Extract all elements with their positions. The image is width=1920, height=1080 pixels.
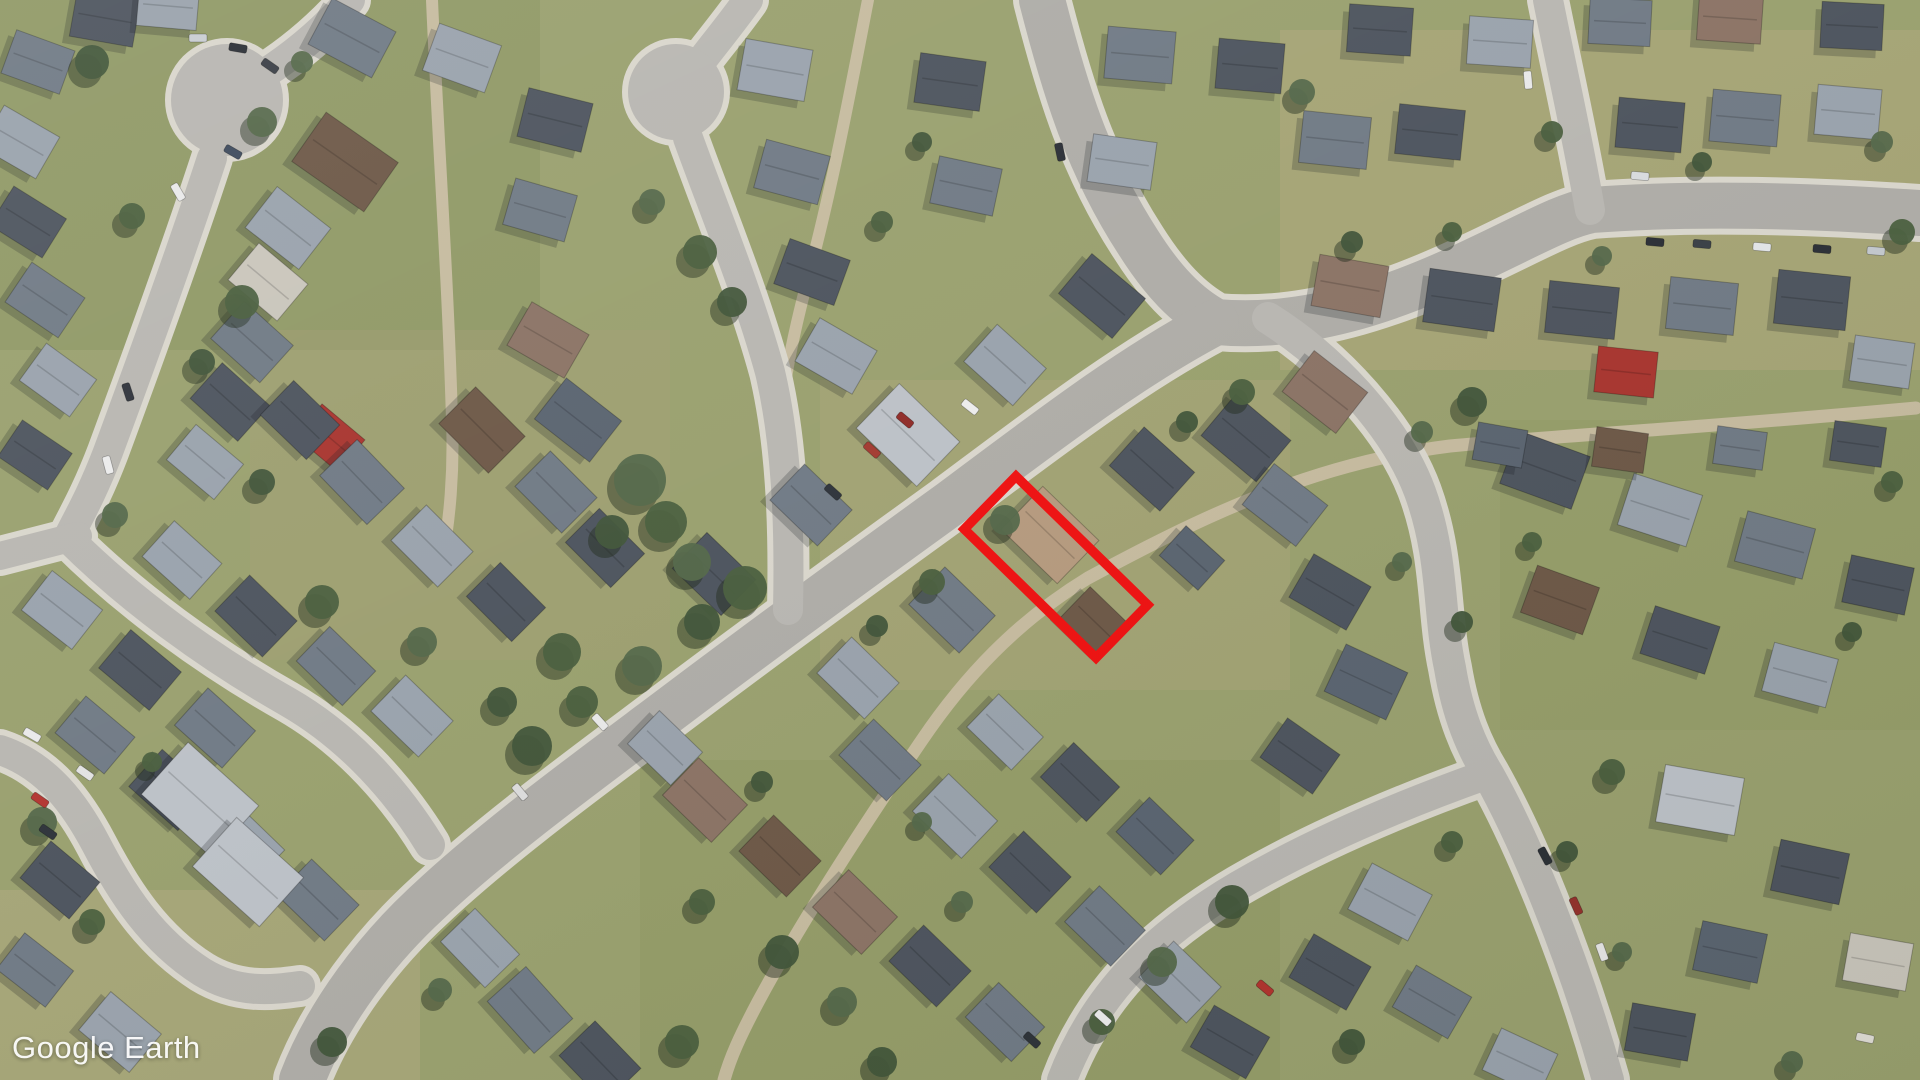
tree	[1556, 841, 1578, 863]
tree	[543, 633, 581, 671]
house	[1473, 1026, 1557, 1080]
street-pavement	[0, 536, 78, 556]
house	[1842, 334, 1915, 397]
tree	[189, 349, 215, 375]
tree	[1592, 246, 1612, 266]
tree	[919, 569, 945, 595]
car	[1867, 246, 1886, 256]
tree	[249, 469, 275, 495]
tree	[595, 515, 629, 549]
tree	[1541, 121, 1563, 143]
car	[1855, 1032, 1874, 1044]
car	[1523, 71, 1533, 90]
car-body	[189, 34, 207, 42]
tree	[1451, 611, 1473, 633]
tree	[1842, 622, 1862, 642]
tree	[247, 107, 277, 137]
car-body	[1753, 242, 1772, 252]
car	[1693, 239, 1712, 249]
house	[1388, 103, 1466, 168]
map-viewport[interactable]: Google Earth	[0, 0, 1920, 1080]
car-body	[1646, 237, 1665, 247]
tree	[1889, 219, 1915, 245]
tree	[305, 585, 339, 619]
car	[1646, 237, 1665, 247]
house	[1292, 110, 1372, 177]
tree	[1215, 885, 1249, 919]
house	[1835, 932, 1914, 999]
tree	[512, 726, 552, 766]
tree	[684, 604, 720, 640]
tree	[142, 752, 162, 772]
house	[1767, 269, 1851, 339]
house	[1690, 0, 1764, 52]
cul-de-sac	[628, 44, 724, 140]
car	[1631, 171, 1650, 181]
house	[922, 155, 1002, 224]
tree	[912, 132, 932, 152]
tree	[317, 1027, 347, 1057]
tree	[1881, 471, 1903, 493]
car	[1813, 244, 1832, 254]
house	[1538, 280, 1620, 348]
tree	[683, 235, 717, 269]
house	[1280, 931, 1371, 1017]
house	[907, 52, 986, 119]
car	[189, 34, 207, 42]
tree	[990, 505, 1020, 535]
tree	[428, 978, 452, 1002]
tree	[1147, 947, 1177, 977]
tree	[225, 285, 259, 319]
tree	[951, 891, 973, 913]
house	[1807, 84, 1882, 148]
house	[1763, 838, 1850, 912]
car-body	[1867, 246, 1886, 256]
car-body	[1523, 71, 1533, 90]
house	[746, 138, 831, 213]
tree	[119, 203, 145, 229]
tree	[1411, 421, 1433, 443]
tree	[1392, 552, 1412, 572]
tree	[487, 687, 517, 717]
aerial-imagery	[0, 0, 1920, 1080]
house-roof	[1696, 0, 1763, 44]
tree	[723, 566, 767, 610]
tree	[622, 646, 662, 686]
car	[1753, 242, 1772, 252]
tree	[665, 1025, 699, 1059]
tree	[639, 189, 665, 215]
tree	[102, 502, 128, 528]
car-body	[1631, 171, 1650, 181]
house	[1280, 551, 1371, 637]
house	[1339, 860, 1433, 948]
tree	[1612, 942, 1632, 962]
tree	[291, 51, 313, 73]
tree	[1341, 231, 1363, 253]
house	[1685, 919, 1767, 991]
tree	[1289, 79, 1315, 105]
house	[1208, 38, 1285, 102]
house	[1813, 1, 1884, 58]
tree	[1599, 759, 1625, 785]
tree	[827, 987, 857, 1017]
house	[1465, 421, 1528, 476]
tree	[645, 501, 687, 543]
house	[10, 340, 97, 424]
tree	[79, 909, 105, 935]
house	[1097, 26, 1176, 92]
car-body	[1693, 239, 1712, 249]
house	[730, 37, 813, 109]
house	[1383, 962, 1472, 1045]
tree	[1339, 1029, 1365, 1055]
tree	[912, 812, 932, 832]
tree	[1692, 152, 1712, 172]
tree	[1871, 131, 1893, 153]
tree	[1441, 831, 1463, 853]
car-body	[1855, 1032, 1874, 1044]
house	[1587, 345, 1658, 406]
house	[765, 236, 850, 313]
house	[1617, 1002, 1696, 1069]
house	[1460, 15, 1534, 76]
tree	[1442, 222, 1462, 242]
google-earth-watermark: Google Earth	[12, 1030, 201, 1066]
tree	[1176, 411, 1198, 433]
tree	[717, 287, 747, 317]
car-body	[1813, 244, 1832, 254]
house	[130, 0, 200, 39]
house	[1340, 3, 1414, 64]
house	[1581, 0, 1652, 55]
tree	[673, 543, 711, 581]
house	[1080, 133, 1157, 198]
house	[1416, 267, 1502, 339]
tree	[871, 211, 893, 233]
tree	[1781, 1051, 1803, 1073]
tree	[1522, 532, 1542, 552]
house	[1659, 276, 1739, 343]
tree	[566, 686, 598, 718]
house	[1702, 89, 1781, 155]
tree	[75, 45, 109, 79]
tree	[1229, 379, 1255, 405]
house	[0, 417, 72, 497]
tree	[614, 454, 666, 506]
house	[1608, 97, 1685, 161]
tree	[689, 889, 715, 915]
tree	[765, 935, 799, 969]
house	[1315, 642, 1407, 728]
tree	[866, 615, 888, 637]
house	[1648, 763, 1744, 843]
car-body	[1595, 942, 1609, 962]
tree	[867, 1047, 897, 1077]
tree	[1457, 387, 1487, 417]
tree	[751, 771, 773, 793]
tree	[407, 627, 437, 657]
car	[1595, 942, 1609, 962]
